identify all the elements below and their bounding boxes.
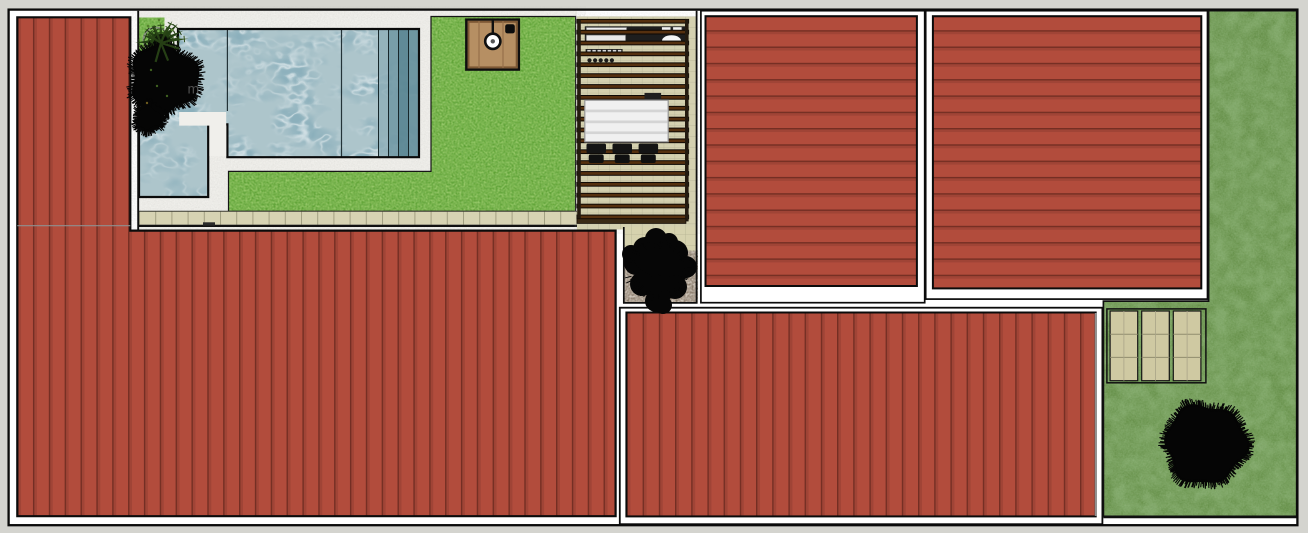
svg-text:m: m xyxy=(188,81,200,97)
